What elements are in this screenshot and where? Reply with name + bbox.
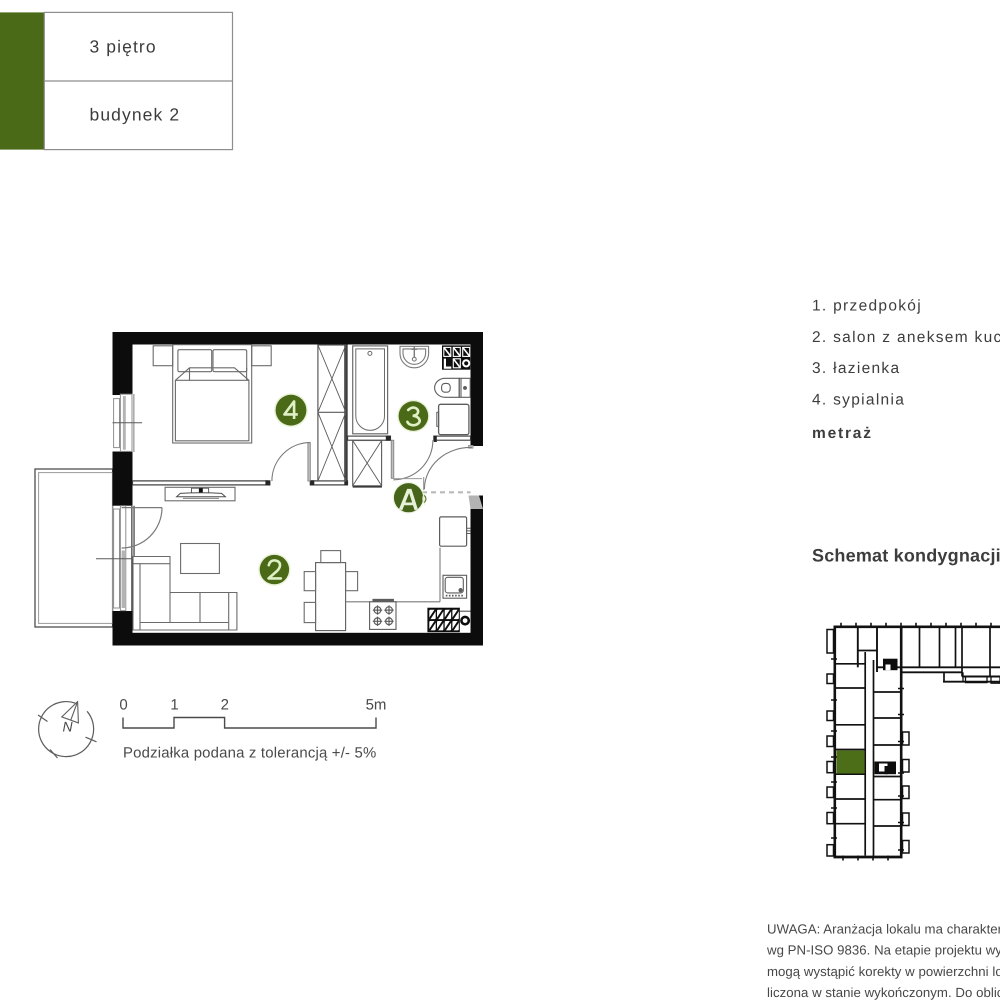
svg-text:metraż: metraż [812, 425, 873, 442]
svg-text:1: 1 [170, 697, 178, 714]
svg-text:mogą wystąpić korekty w powier: mogą wystąpić korekty w powierzchni loka… [767, 964, 1000, 979]
svg-text:1. przedpokój: 1. przedpokój [812, 298, 922, 315]
svg-text:Schemat kondygnacji: Schemat kondygnacji [812, 546, 1000, 566]
svg-text:2: 2 [221, 697, 229, 714]
svg-text:3. łazienka: 3. łazienka [812, 360, 900, 377]
svg-text:N: N [63, 719, 74, 735]
svg-text:Podziałka podana z tolerancją: Podziałka podana z tolerancją +/- 5% [123, 746, 376, 762]
svg-text:5m: 5m [366, 697, 387, 714]
svg-text:0: 0 [119, 697, 127, 714]
svg-text:2. salon z aneksem kuchennym: 2. salon z aneksem kuchennym [812, 329, 1000, 346]
svg-text:4. sypialnia: 4. sypialnia [812, 391, 905, 408]
svg-text:wg PN-ISO 9836. Na etapie proj: wg PN-ISO 9836. Na etapie projektu wykon… [766, 943, 1000, 958]
svg-text:3 piętro: 3 piętro [90, 37, 157, 57]
svg-text:UWAGA: Aranżacja lokalu ma cha: UWAGA: Aranżacja lokalu ma charakter pog… [767, 922, 1000, 937]
svg-text:liczona w stanie wykończonym.: liczona w stanie wykończonym. Do oblicze… [767, 985, 1000, 1000]
svg-text:budynek 2: budynek 2 [90, 105, 181, 125]
